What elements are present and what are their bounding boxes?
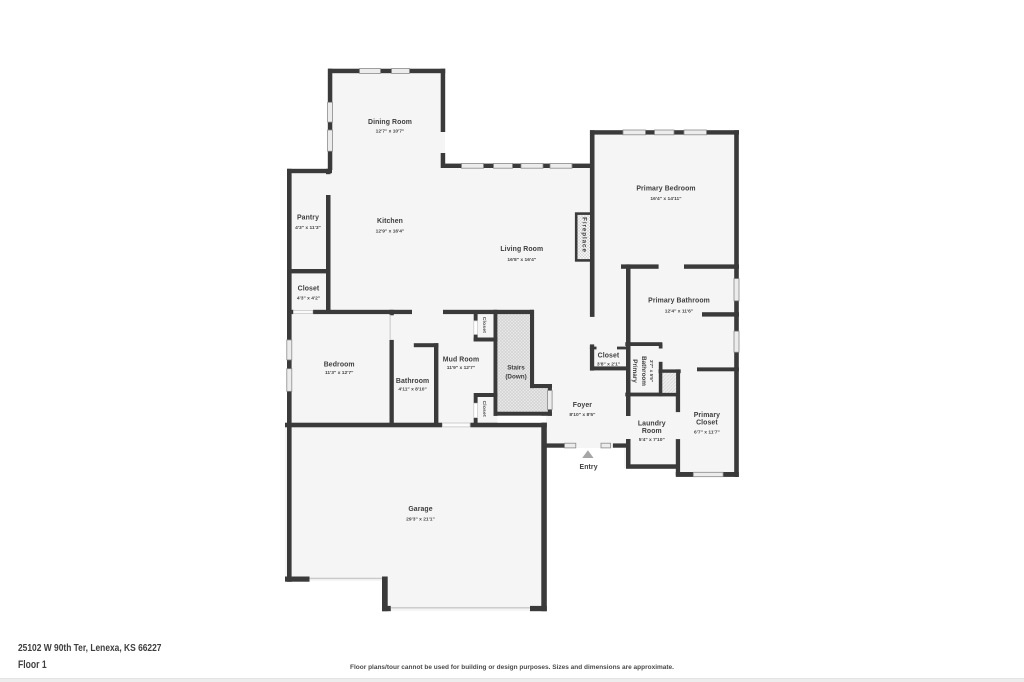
svg-text:16'4" x 14'11": 16'4" x 14'11" [650, 196, 681, 202]
svg-text:Living Room: Living Room [500, 246, 543, 253]
svg-text:6'7" x 11'7": 6'7" x 11'7" [694, 429, 720, 435]
svg-text:16'8" x 16'4": 16'8" x 16'4" [507, 257, 536, 263]
svg-text:Closet: Closet [482, 317, 487, 334]
svg-text:Closet: Closet [482, 401, 487, 418]
svg-text:Garage: Garage [408, 506, 432, 513]
svg-text:Bathroom: Bathroom [640, 356, 647, 386]
svg-text:Entry: Entry [580, 464, 598, 471]
svg-text:(Down): (Down) [505, 374, 526, 381]
svg-text:3'7" x 5'5": 3'7" x 5'5" [649, 360, 654, 382]
svg-text:Bedroom: Bedroom [324, 362, 355, 369]
svg-text:11'9" x 12'7": 11'9" x 12'7" [447, 365, 475, 371]
svg-text:Closet: Closet [298, 286, 320, 293]
svg-text:4'11" x 8'10": 4'11" x 8'10" [398, 387, 426, 393]
svg-text:Laundry: Laundry [638, 421, 666, 428]
svg-text:29'3" x 21'1": 29'3" x 21'1" [406, 516, 435, 522]
svg-text:12'4" x 11'6": 12'4" x 11'6" [665, 308, 693, 314]
svg-text:12'7" x 10'7": 12'7" x 10'7" [376, 129, 405, 135]
svg-text:Pantry: Pantry [297, 215, 319, 222]
svg-text:8'10" x 8'5": 8'10" x 8'5" [569, 412, 595, 418]
svg-text:Dining Room: Dining Room [368, 119, 412, 126]
svg-text:Primary Bathroom: Primary Bathroom [648, 298, 710, 305]
svg-text:Closet: Closet [696, 419, 718, 426]
svg-text:Bathroom: Bathroom [396, 378, 429, 385]
svg-text:Primary: Primary [694, 412, 720, 419]
svg-text:Primary: Primary [631, 359, 638, 383]
svg-text:5'4" x 7'10": 5'4" x 7'10" [639, 437, 665, 443]
svg-text:Fireplace: Fireplace [580, 217, 587, 253]
svg-text:3'8" x 2'1": 3'8" x 2'1" [597, 361, 620, 367]
svg-text:Closet: Closet [598, 353, 620, 360]
svg-text:Foyer: Foyer [573, 402, 592, 409]
svg-text:Mud Room: Mud Room [443, 357, 479, 364]
svg-text:Stairs: Stairs [507, 365, 525, 372]
svg-text:4'3" x 4'2": 4'3" x 4'2" [297, 296, 320, 302]
svg-text:Kitchen: Kitchen [377, 218, 403, 225]
svg-text:12'9" x 16'4": 12'9" x 16'4" [376, 229, 405, 235]
svg-text:4'3" x 11'3": 4'3" x 11'3" [295, 225, 321, 231]
svg-text:Primary Bedroom: Primary Bedroom [636, 186, 695, 193]
svg-text:11'3" x 12'7": 11'3" x 12'7" [325, 370, 353, 376]
svg-text:Room: Room [642, 428, 662, 435]
